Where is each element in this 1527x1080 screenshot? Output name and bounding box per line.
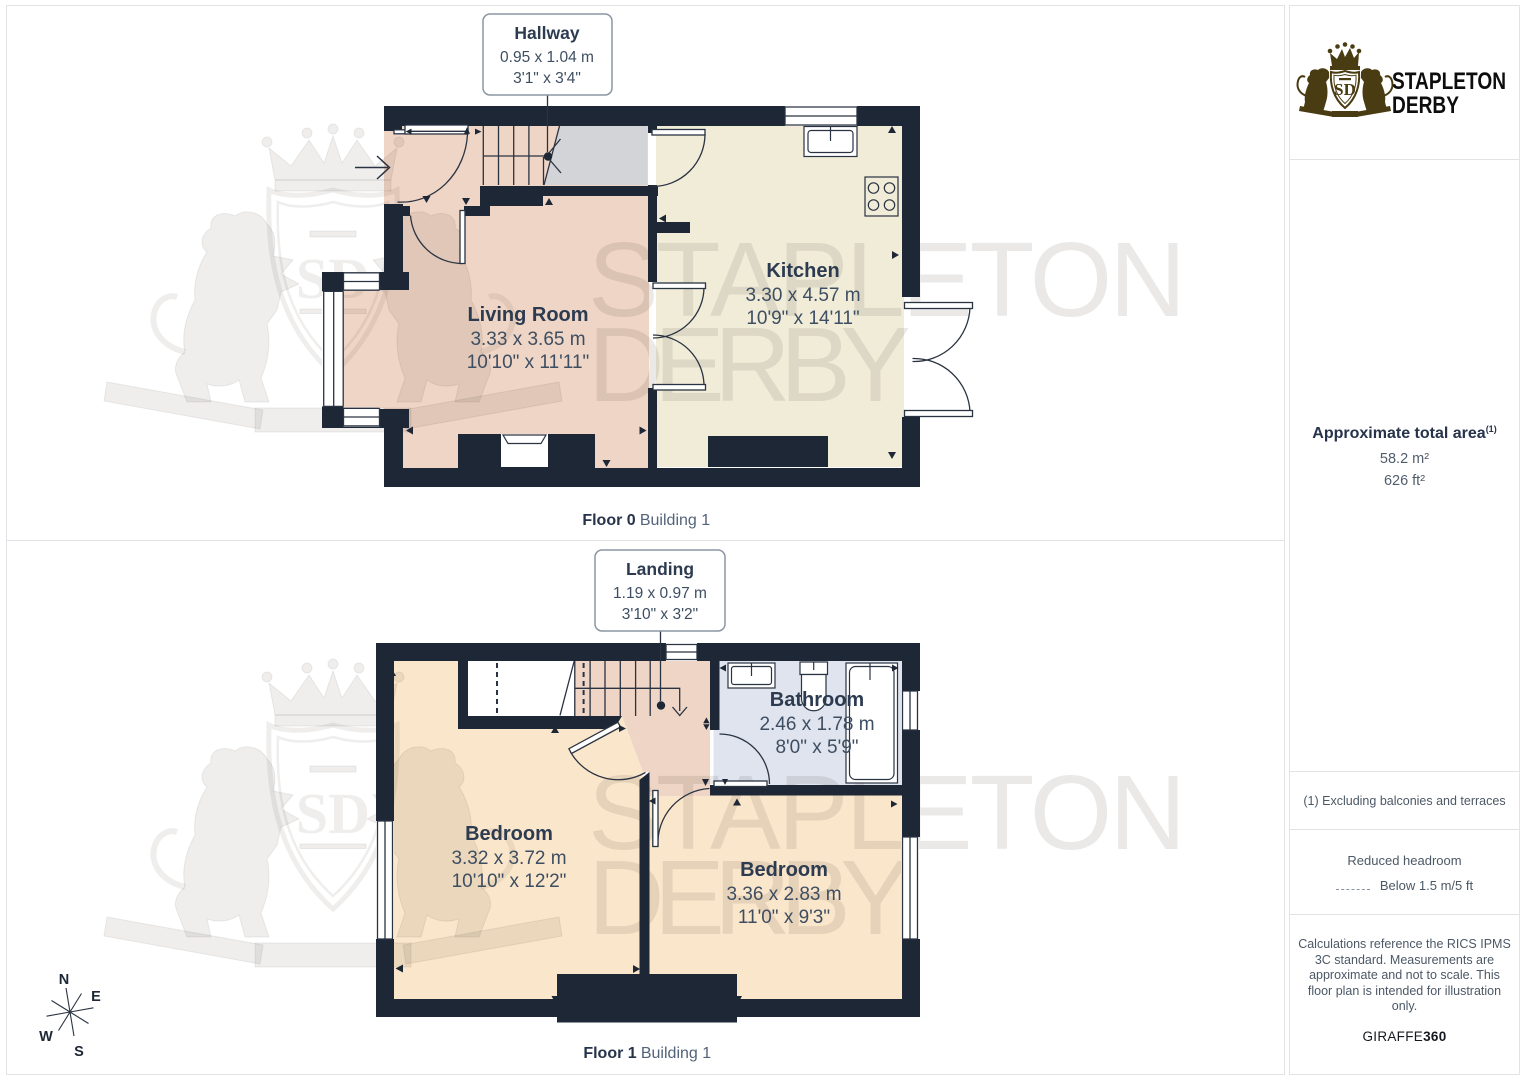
svg-text:Building 1: Building 1: [641, 1045, 711, 1062]
svg-text:1.19 x 0.97 m: 1.19 x 0.97 m: [613, 585, 707, 602]
svg-text:N: N: [59, 972, 69, 988]
svg-text:10'10" x 11'11": 10'10" x 11'11": [467, 352, 590, 373]
svg-text:Floor 1: Floor 1: [583, 1045, 636, 1062]
svg-text:Building 1: Building 1: [640, 512, 710, 529]
svg-text:E: E: [91, 989, 101, 1005]
svg-text:Floor 0: Floor 0: [582, 512, 635, 529]
svg-text:3'10" x 3'2": 3'10" x 3'2": [622, 606, 698, 623]
svg-text:11'0" x 9'3": 11'0" x 9'3": [738, 907, 830, 928]
svg-text:Living Room: Living Room: [467, 304, 588, 326]
svg-text:Hallway: Hallway: [514, 23, 579, 43]
svg-text:3.33 x 3.65 m: 3.33 x 3.65 m: [470, 329, 585, 350]
svg-text:Bedroom: Bedroom: [465, 823, 553, 845]
svg-text:W: W: [39, 1029, 53, 1045]
svg-text:3'1" x 3'4": 3'1" x 3'4": [513, 70, 581, 87]
svg-text:Bathroom: Bathroom: [770, 689, 864, 711]
svg-text:10'10" x 12'2": 10'10" x 12'2": [452, 871, 567, 892]
svg-text:3.30 x 4.57 m: 3.30 x 4.57 m: [745, 285, 860, 306]
svg-text:2.46 x 1.78 m: 2.46 x 1.78 m: [759, 714, 874, 735]
svg-text:Landing: Landing: [626, 559, 694, 579]
svg-text:10'9" x 14'11": 10'9" x 14'11": [746, 308, 859, 329]
svg-text:0.95 x 1.04 m: 0.95 x 1.04 m: [500, 49, 594, 66]
svg-text:8'0" x 5'9": 8'0" x 5'9": [775, 737, 858, 758]
svg-text:Kitchen: Kitchen: [766, 260, 839, 282]
svg-text:3.32 x 3.72 m: 3.32 x 3.72 m: [451, 848, 566, 869]
svg-text:S: S: [74, 1044, 84, 1060]
svg-text:Bedroom: Bedroom: [740, 859, 828, 881]
svg-text:3.36 x 2.83 m: 3.36 x 2.83 m: [726, 884, 841, 905]
